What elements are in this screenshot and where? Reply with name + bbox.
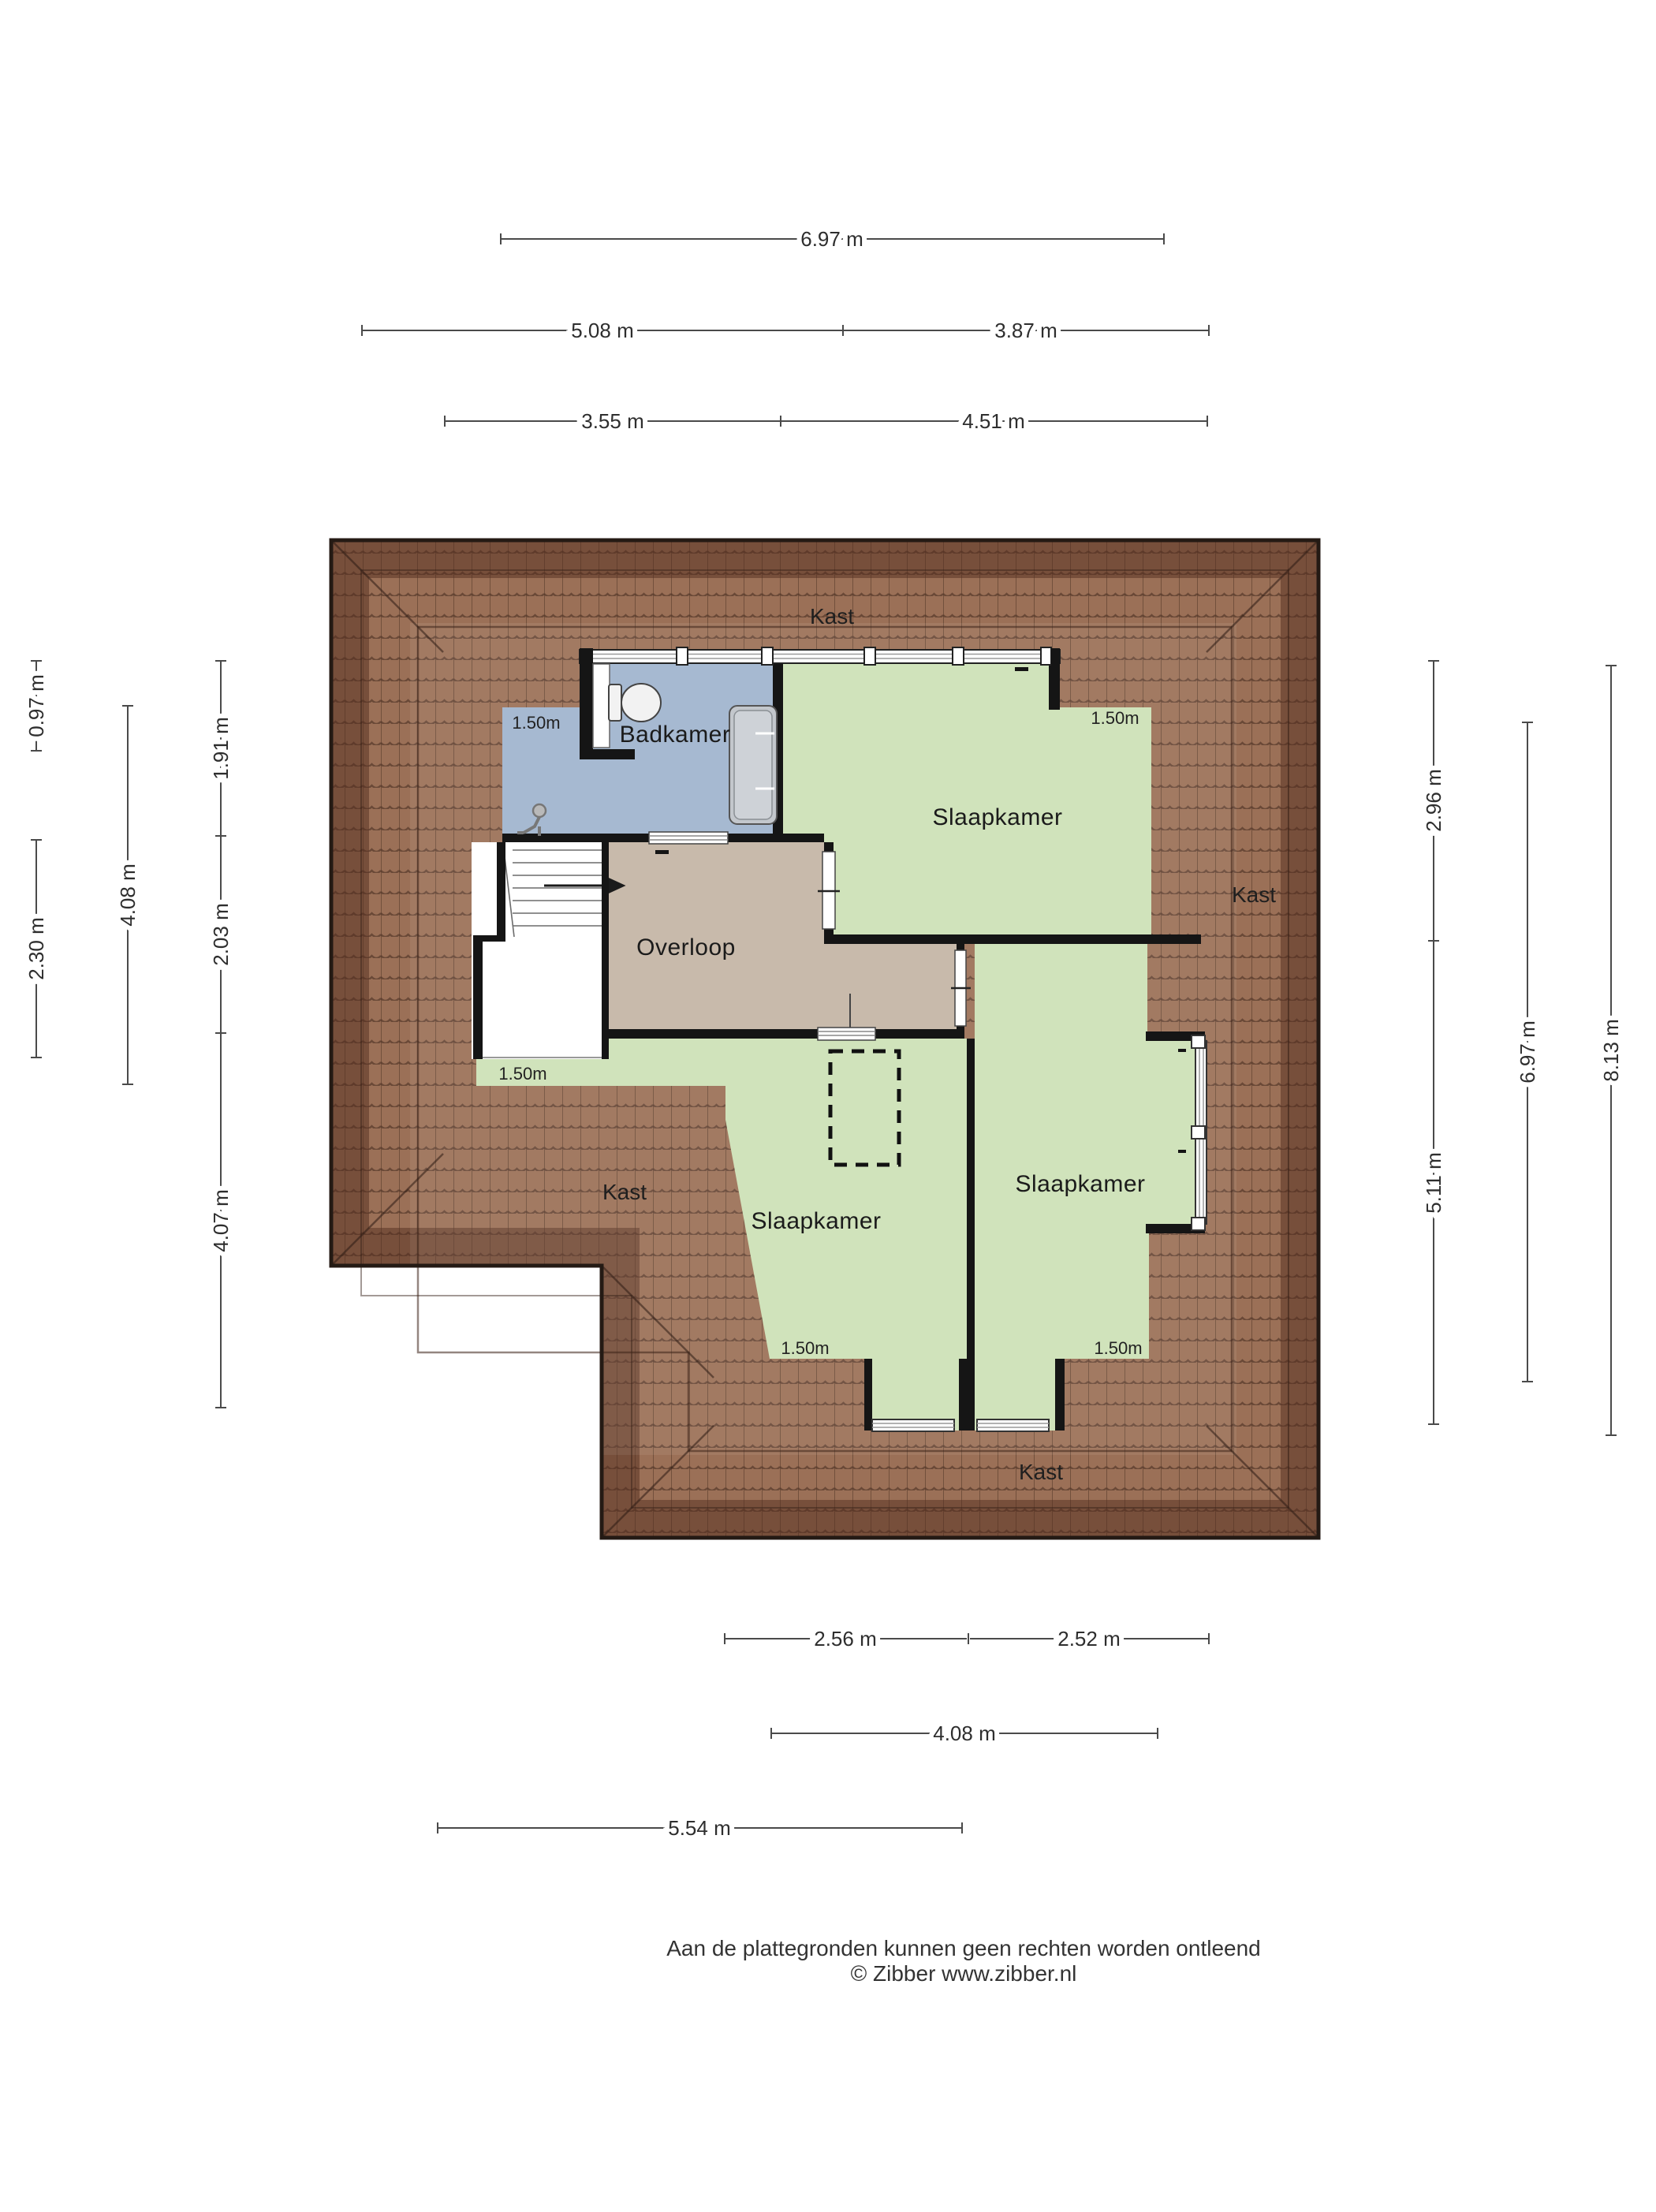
dim-bottom-row1 [725, 1633, 1209, 1644]
wall-kneestub-right [1055, 1359, 1065, 1431]
footer-copyright: © Zibber www.zibber.nl [851, 1961, 1077, 1986]
dim-label-top-697: 6.97 m [800, 227, 863, 251]
window-band-frame [580, 650, 1060, 663]
dim-label-top-508: 5.08 m [571, 319, 634, 342]
dim-label-left-407: 4.07 m [209, 1189, 233, 1252]
label-slaapkamer-right: Slaapkamer [1015, 1171, 1145, 1197]
toilet-icon [609, 684, 661, 722]
wall-kneestub-middle-left [864, 1359, 872, 1431]
dim-label-right-813: 8.13 m [1599, 1019, 1623, 1082]
height-marker-middle-bottom: 1.50m [781, 1338, 829, 1358]
dim-label-right-697: 6.97 m [1516, 1020, 1539, 1084]
dim-label-left-097: 0.97 m [24, 674, 48, 737]
label-slaapkamer-middle: Slaapkamer [751, 1208, 881, 1234]
floorplan-page: Kast Kast Kast Kast Badkamer Overloop Sl… [0, 0, 1656, 2208]
dim-label-bottom-252: 2.52 m [1057, 1627, 1121, 1651]
dim-label-top-387: 3.87 m [994, 319, 1057, 342]
vent-dash-right-1 [1178, 1049, 1186, 1052]
door-badkamer-threshold [649, 832, 728, 844]
label-overloop: Overloop [636, 934, 736, 961]
wall-corner-topleft [580, 648, 593, 669]
dim-top-row2 [362, 325, 1209, 336]
label-slaapkamer-top: Slaapkamer [932, 804, 1062, 830]
dim-label-bottom-408: 4.08 m [933, 1721, 996, 1745]
bathtub-icon [729, 706, 777, 824]
vent-dash-overloop [655, 850, 669, 854]
window-bottom-middle [872, 1419, 954, 1431]
wall-corner-topright [1051, 648, 1060, 710]
dim-top-row3 [445, 416, 1207, 427]
wall-bathroom-left-jog [580, 749, 635, 759]
label-kast-right: Kast [1232, 882, 1276, 907]
dim-label-left-408: 4.08 m [116, 864, 140, 927]
label-kast-top: Kast [810, 604, 854, 629]
footer-disclaimer: Aan de plattegronden kunnen geen rechten… [666, 1936, 1260, 1960]
label-kast-left: Kast [602, 1180, 647, 1204]
dim-label-bottom-554: 5.54 m [668, 1816, 731, 1840]
height-marker-middle-left: 1.50m [498, 1064, 546, 1084]
dim-label-bottom-256: 2.56 m [814, 1627, 877, 1651]
dim-label-right-296: 2.96 m [1422, 769, 1445, 832]
wall-bedrooms-divider [967, 1039, 975, 1431]
dim-label-top-355: 3.55 m [581, 409, 644, 433]
floorplan-canvas: Kast Kast Kast Kast Badkamer Overloop Sl… [0, 0, 1656, 2208]
dim-label-top-451: 4.51 m [962, 409, 1025, 433]
label-badkamer: Badkamer [620, 722, 731, 748]
footer: Aan de plattegronden kunnen geen rechten… [666, 1936, 1260, 1986]
height-marker-badkamer: 1.50m [512, 713, 560, 733]
vent-dash-slaapkamer-top [1015, 667, 1028, 671]
door-badkamer-leaf [593, 664, 610, 748]
stairwell [472, 842, 623, 1059]
dim-label-left-203: 2.03 m [209, 903, 233, 966]
wall-bedroomtop-bottom [824, 934, 1201, 944]
vent-dash-right-2 [1178, 1150, 1186, 1153]
wall-overloop-bottom [607, 1029, 964, 1039]
label-kast-bottom: Kast [1019, 1460, 1063, 1484]
dim-label-left-191: 1.91 m [209, 717, 233, 780]
height-marker-slaapkamer-top: 1.50m [1091, 708, 1139, 728]
wall-kneestub-middle-right [959, 1359, 967, 1431]
dim-label-left-230: 2.30 m [24, 917, 48, 980]
height-marker-right-bottom: 1.50m [1094, 1338, 1142, 1358]
window-bottom-right [977, 1419, 1049, 1431]
dim-label-right-511: 5.11 m [1422, 1152, 1445, 1214]
